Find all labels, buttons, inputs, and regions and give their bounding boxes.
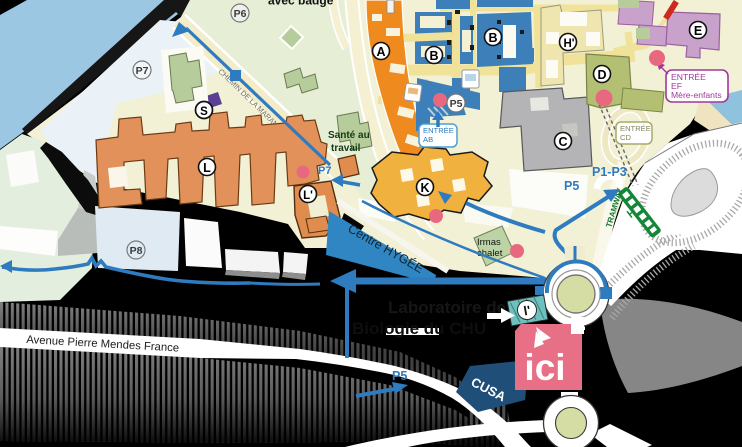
svg-text:K: K: [420, 181, 429, 195]
svg-text:P1-P3: P1-P3: [592, 165, 627, 179]
svg-text:Santé au: Santé au: [328, 130, 370, 141]
svg-text:P6: P6: [234, 8, 247, 20]
svg-text:Mère-enfants: Mère-enfants: [671, 90, 722, 100]
svg-text:E: E: [694, 24, 702, 38]
svg-text:L: L: [203, 161, 211, 175]
svg-text:S: S: [200, 106, 208, 118]
svg-text:avec badge: avec badge: [268, 0, 334, 8]
svg-text:A: A: [376, 45, 385, 59]
svg-text:ENTRÉE: ENTRÉE: [423, 126, 454, 135]
svg-text:P8: P8: [130, 245, 143, 257]
svg-text:P7: P7: [136, 65, 149, 77]
svg-text:P7: P7: [318, 165, 331, 177]
svg-text:AB: AB: [423, 135, 433, 144]
svg-text:P5: P5: [450, 98, 463, 110]
svg-text:ENTRÉE: ENTRÉE: [620, 124, 651, 133]
svg-text:B: B: [429, 49, 438, 63]
svg-text:Irmas: Irmas: [477, 237, 501, 248]
svg-text:ici: ici: [524, 347, 565, 388]
svg-text:D: D: [597, 68, 606, 82]
svg-text:H': H': [563, 38, 574, 50]
svg-text:C: C: [558, 135, 567, 149]
svg-text:Biologie du CHU: Biologie du CHU: [352, 319, 486, 338]
svg-text:CD: CD: [620, 133, 631, 142]
svg-text:travail: travail: [331, 143, 361, 154]
svg-text:P5: P5: [392, 369, 407, 383]
svg-text:L': L': [303, 190, 313, 202]
svg-text:P5: P5: [564, 179, 579, 193]
svg-text:B: B: [488, 31, 497, 45]
